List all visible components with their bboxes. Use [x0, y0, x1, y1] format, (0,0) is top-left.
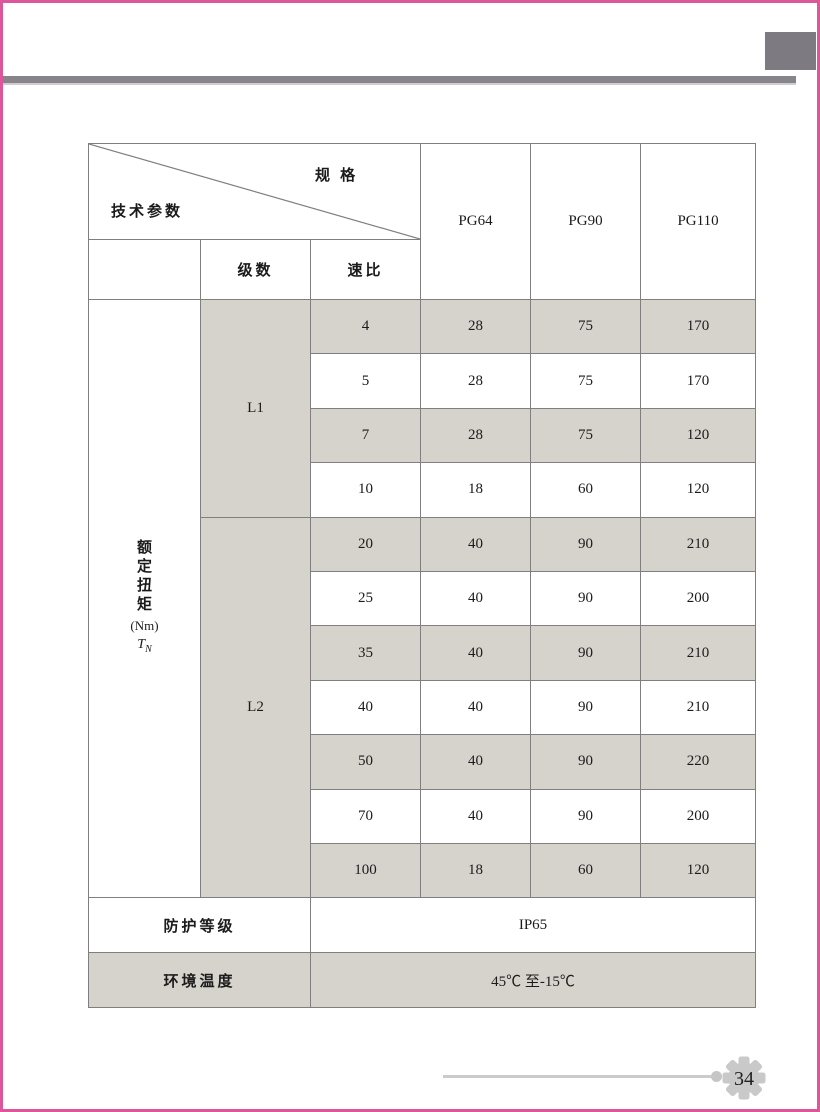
- value-cell: 28: [421, 300, 531, 354]
- table-row: 额 定 扭 矩 (Nm) TN L1 4 28 75 170: [89, 300, 756, 354]
- temperature-value: 45℃ 至-15℃: [311, 953, 756, 1008]
- value-cell: 170: [641, 300, 756, 354]
- protection-value: IP65: [311, 898, 756, 953]
- ratio-cell: 25: [311, 571, 421, 625]
- value-cell: 18: [421, 463, 531, 517]
- torque-unit: (Nm): [130, 616, 158, 635]
- value-cell: 210: [641, 626, 756, 680]
- ratio-cell: 50: [311, 735, 421, 789]
- value-cell: 90: [531, 680, 641, 734]
- value-cell: 60: [531, 463, 641, 517]
- value-cell: 90: [531, 789, 641, 843]
- gear-icon: 34: [721, 1055, 767, 1101]
- torque-char: 矩: [137, 595, 152, 614]
- column-header-pg110: PG110: [641, 144, 756, 300]
- value-cell: 40: [421, 789, 531, 843]
- ratio-cell: 5: [311, 354, 421, 408]
- ratio-cell: 35: [311, 626, 421, 680]
- value-cell: 40: [421, 571, 531, 625]
- torque-symbol: TN: [137, 635, 151, 659]
- value-cell: 200: [641, 571, 756, 625]
- corner-spec-label: 规 格: [315, 164, 358, 185]
- value-cell: 40: [421, 680, 531, 734]
- value-cell: 90: [531, 735, 641, 789]
- torque-symbol-sub: N: [145, 644, 152, 655]
- value-cell: 75: [531, 300, 641, 354]
- value-cell: 18: [421, 843, 531, 897]
- value-cell: 220: [641, 735, 756, 789]
- torque-char: 额: [137, 538, 152, 557]
- value-cell: 40: [421, 517, 531, 571]
- header-corner-block: [765, 32, 816, 70]
- corner-tech-label: 技术参数: [111, 200, 183, 221]
- torque-char: 定: [137, 557, 152, 576]
- value-cell: 120: [641, 463, 756, 517]
- ratio-cell: 4: [311, 300, 421, 354]
- value-cell: 200: [641, 789, 756, 843]
- diagonal-line: [89, 144, 420, 239]
- stage-cell-l1: L1: [201, 300, 311, 518]
- value-cell: 75: [531, 408, 641, 462]
- empty-header-cell: [89, 240, 201, 300]
- value-cell: 210: [641, 517, 756, 571]
- ratio-cell: 70: [311, 789, 421, 843]
- value-cell: 60: [531, 843, 641, 897]
- column-header-pg64: PG64: [421, 144, 531, 300]
- value-cell: 120: [641, 408, 756, 462]
- footer-rule: [443, 1075, 713, 1078]
- torque-label-cell: 额 定 扭 矩 (Nm) TN: [89, 300, 201, 898]
- temperature-row: 环境温度 45℃ 至-15℃: [89, 953, 756, 1008]
- ratio-cell: 20: [311, 517, 421, 571]
- value-cell: 90: [531, 626, 641, 680]
- table-header-row-1: 规 格 技术参数 PG64 PG90 PG110: [89, 144, 756, 240]
- ratio-cell: 7: [311, 408, 421, 462]
- torque-char: 扭: [137, 576, 152, 595]
- header-rule: [3, 76, 796, 85]
- catalog-page: 规 格 技术参数 PG64 PG90 PG110 级数 速比 额 定 扭 矩 (…: [0, 0, 820, 1112]
- ratio-header: 速比: [311, 240, 421, 300]
- value-cell: 28: [421, 408, 531, 462]
- torque-symbol-letter: T: [137, 637, 145, 652]
- value-cell: 90: [531, 571, 641, 625]
- stage-cell-l2: L2: [201, 517, 311, 898]
- ratio-cell: 10: [311, 463, 421, 517]
- ratio-cell: 40: [311, 680, 421, 734]
- corner-cell: 规 格 技术参数: [89, 144, 421, 240]
- protection-row: 防护等级 IP65: [89, 898, 756, 953]
- temperature-label: 环境温度: [89, 953, 311, 1008]
- ratio-cell: 100: [311, 843, 421, 897]
- stage-header: 级数: [201, 240, 311, 300]
- value-cell: 170: [641, 354, 756, 408]
- torque-label: 额 定 扭 矩 (Nm) TN: [89, 538, 200, 659]
- column-header-pg90: PG90: [531, 144, 641, 300]
- value-cell: 75: [531, 354, 641, 408]
- spec-table: 规 格 技术参数 PG64 PG90 PG110 级数 速比 额 定 扭 矩 (…: [88, 143, 756, 1008]
- page-number: 34: [734, 1068, 754, 1090]
- protection-label: 防护等级: [89, 898, 311, 953]
- value-cell: 120: [641, 843, 756, 897]
- value-cell: 90: [531, 517, 641, 571]
- value-cell: 40: [421, 735, 531, 789]
- value-cell: 40: [421, 626, 531, 680]
- value-cell: 28: [421, 354, 531, 408]
- value-cell: 210: [641, 680, 756, 734]
